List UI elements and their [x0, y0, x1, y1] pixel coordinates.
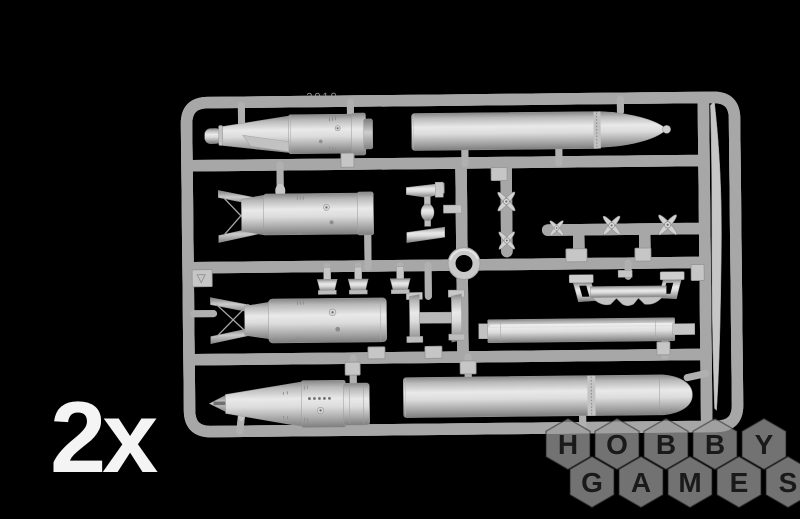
- watermark-letter: M: [678, 467, 701, 498]
- watermark-letter: E: [730, 467, 749, 498]
- ring-part: [448, 247, 480, 279]
- watermark-letter: B: [705, 429, 725, 460]
- quantity-label: 2x: [50, 382, 158, 494]
- launch-rail-beam-part: [479, 318, 695, 343]
- watermark-letter: B: [656, 429, 676, 460]
- watermark-letter: O: [606, 429, 628, 460]
- watermark-letter: S: [779, 467, 798, 498]
- molded-sprue-marking: 2010: [306, 91, 339, 103]
- watermark-letter: Y: [755, 429, 774, 460]
- watermark-letter: G: [581, 467, 603, 498]
- product-photo-model-sprue: 2010 2x H O B B Y: [0, 0, 800, 519]
- fuel-tank-front-part: [403, 375, 692, 418]
- sprue-illustration: 2010 2x H O B B Y: [0, 0, 800, 519]
- watermark-letter: H: [558, 429, 578, 460]
- watermark-letter: A: [631, 467, 651, 498]
